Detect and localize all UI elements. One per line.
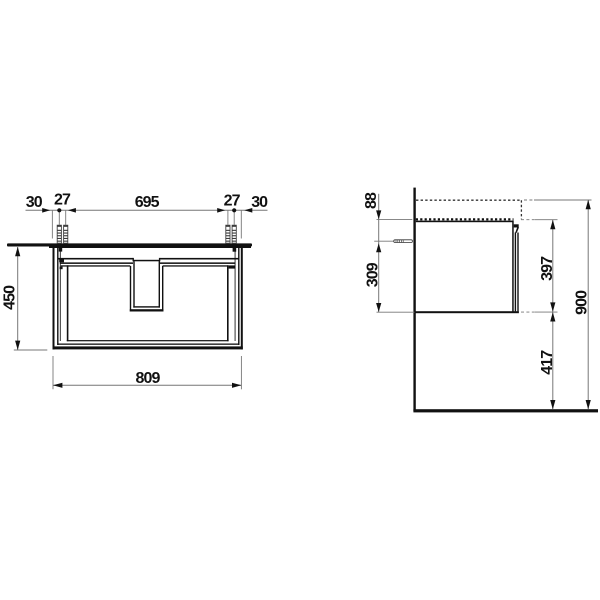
svg-text:30: 30 (251, 194, 268, 211)
svg-text:88: 88 (363, 192, 380, 209)
svg-text:397: 397 (539, 256, 556, 281)
svg-text:27: 27 (54, 191, 71, 208)
svg-text:30: 30 (26, 194, 43, 211)
svg-text:309: 309 (365, 262, 382, 287)
svg-text:900: 900 (573, 290, 590, 315)
svg-text:417: 417 (539, 350, 556, 375)
svg-text:695: 695 (135, 194, 160, 211)
svg-text:809: 809 (136, 370, 161, 387)
svg-text:450: 450 (2, 285, 19, 310)
svg-text:27: 27 (224, 192, 241, 209)
